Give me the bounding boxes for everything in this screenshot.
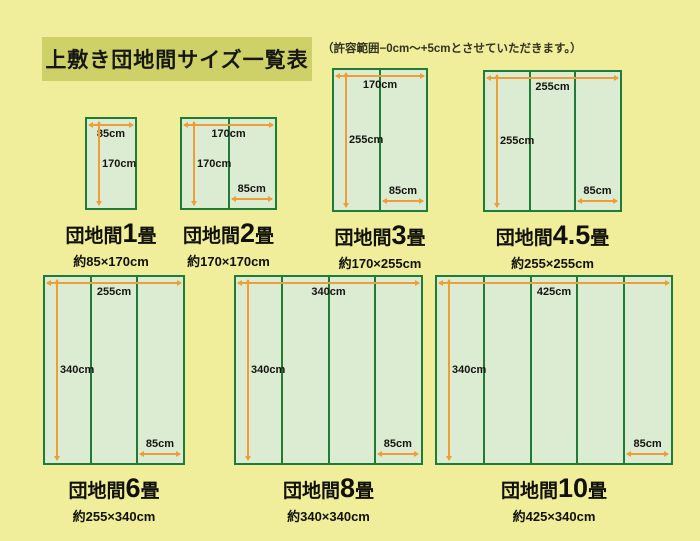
arrowhead-down bbox=[54, 456, 60, 461]
caption-prefix: 団地間 bbox=[183, 226, 240, 247]
width-label: 255cm bbox=[45, 286, 183, 298]
width-label: 170cm bbox=[182, 128, 275, 140]
height-arrow bbox=[98, 122, 100, 205]
arrowhead-left bbox=[626, 451, 631, 457]
panel-width-label: 85cm bbox=[137, 438, 183, 450]
caption-unit: 畳 bbox=[590, 228, 609, 249]
diagram-caption-danchima-2jo: 団地間2畳約170×170cm bbox=[183, 219, 274, 270]
width-label: 170cm bbox=[334, 79, 426, 91]
size-chart-canvas: 上敷き団地間サイズ一覧表 （許容範囲−0cm～+5cmとさせていただきます。） … bbox=[0, 0, 700, 541]
caption-dimensions: 約340×340cm bbox=[283, 506, 374, 525]
panel-divider bbox=[328, 277, 330, 463]
caption-prefix: 団地間 bbox=[68, 481, 125, 502]
rug-rect-danchima-6jo: 255cm340cm85cm bbox=[43, 275, 185, 465]
arrowhead-down bbox=[191, 201, 197, 206]
height-arrow bbox=[345, 73, 347, 207]
caption-unit: 畳 bbox=[588, 481, 607, 502]
height-arrow bbox=[247, 280, 249, 460]
caption-name: 団地間3畳 bbox=[334, 221, 425, 251]
arrowhead-right bbox=[664, 451, 669, 457]
width-arrow bbox=[238, 282, 419, 284]
diagram-caption-danchima-10jo: 団地間10畳約425×340cm bbox=[501, 474, 607, 525]
panel-divider bbox=[374, 277, 376, 463]
height-arrow bbox=[193, 122, 195, 205]
panel-width-arrow bbox=[627, 453, 668, 455]
panel-width-label: 85cm bbox=[380, 185, 426, 197]
panel-width-arrow bbox=[140, 453, 180, 455]
panel-width-label: 85cm bbox=[624, 438, 671, 450]
arrowhead-up bbox=[96, 121, 102, 126]
caption-size-number: 1 bbox=[122, 218, 137, 248]
height-label: 170cm bbox=[102, 158, 136, 170]
rug-rect-danchima-2jo: 170cm170cm85cm bbox=[180, 117, 277, 210]
caption-name: 団地間8畳 bbox=[283, 474, 374, 504]
panel-divider bbox=[576, 277, 578, 463]
rug-rect-danchima-10jo: 425cm340cm85cm bbox=[435, 275, 673, 465]
height-arrow bbox=[448, 280, 450, 460]
height-arrow bbox=[496, 75, 498, 207]
arrowhead-up bbox=[494, 74, 500, 79]
arrowhead-up bbox=[245, 279, 251, 284]
arrowhead-down bbox=[343, 203, 349, 208]
arrowhead-left bbox=[577, 198, 582, 204]
arrowhead-down bbox=[446, 456, 452, 461]
caption-size-number: 3 bbox=[391, 220, 406, 250]
arrowhead-down bbox=[96, 201, 102, 206]
diagram-caption-danchima-6jo: 団地間6畳約255×340cm bbox=[68, 474, 159, 525]
diagram-caption-danchima-3jo: 団地間3畳約170×255cm bbox=[334, 221, 425, 272]
diagram-caption-danchima-4-5jo: 団地間4.5畳約255×255cm bbox=[496, 221, 610, 272]
arrowhead-left bbox=[382, 198, 387, 204]
caption-dimensions: 約255×340cm bbox=[68, 506, 159, 525]
caption-unit: 畳 bbox=[255, 226, 274, 247]
caption-size-number: 6 bbox=[125, 473, 140, 503]
panel-width-label: 85cm bbox=[375, 438, 421, 450]
caption-name: 団地間2畳 bbox=[183, 219, 274, 249]
width-arrow bbox=[439, 282, 669, 284]
panel-width-arrow bbox=[383, 200, 423, 202]
diagram-caption-danchima-1jo: 団地間1畳約85×170cm bbox=[65, 219, 156, 270]
arrowhead-right bbox=[414, 451, 419, 457]
diagram-caption-danchima-8jo: 団地間8畳約340×340cm bbox=[283, 474, 374, 525]
arrowhead-up bbox=[446, 279, 452, 284]
arrowhead-down bbox=[494, 203, 500, 208]
caption-prefix: 団地間 bbox=[283, 481, 340, 502]
caption-unit: 畳 bbox=[355, 481, 374, 502]
height-label: 340cm bbox=[452, 364, 486, 376]
caption-prefix: 団地間 bbox=[334, 228, 391, 249]
height-label: 170cm bbox=[197, 158, 231, 170]
arrowhead-up bbox=[343, 72, 349, 77]
rug-rect-danchima-4-5jo: 255cm255cm85cm bbox=[483, 70, 622, 212]
panel-divider bbox=[623, 277, 625, 463]
arrowhead-right bbox=[176, 451, 181, 457]
caption-prefix: 団地間 bbox=[65, 226, 122, 247]
caption-name: 団地間6畳 bbox=[68, 474, 159, 504]
arrowhead-up bbox=[191, 121, 197, 126]
caption-size-number: 10 bbox=[558, 473, 588, 503]
panel-width-label: 85cm bbox=[229, 183, 276, 195]
rug-rect-danchima-3jo: 170cm255cm85cm bbox=[332, 68, 428, 212]
caption-unit: 畳 bbox=[138, 226, 157, 247]
caption-size-number: 8 bbox=[340, 473, 355, 503]
width-label: 425cm bbox=[437, 286, 671, 298]
caption-dimensions: 約170×255cm bbox=[334, 253, 425, 272]
caption-prefix: 団地間 bbox=[496, 228, 553, 249]
width-arrow bbox=[184, 124, 273, 126]
caption-unit: 畳 bbox=[141, 481, 160, 502]
arrowhead-up bbox=[54, 279, 60, 284]
tolerance-note: （許容範囲−0cm～+5cmとさせていただきます。） bbox=[322, 40, 582, 56]
arrowhead-left bbox=[231, 196, 236, 202]
panel-divider bbox=[530, 277, 532, 463]
height-label: 255cm bbox=[500, 135, 534, 147]
panel-width-arrow bbox=[378, 453, 418, 455]
rug-rect-danchima-1jo: 85cm170cm bbox=[85, 117, 137, 210]
caption-dimensions: 約85×170cm bbox=[65, 251, 156, 270]
arrowhead-left bbox=[139, 451, 144, 457]
panel-width-arrow bbox=[578, 200, 617, 202]
page-title: 上敷き団地間サイズ一覧表 bbox=[45, 44, 308, 74]
caption-name: 団地間4.5畳 bbox=[496, 221, 610, 251]
width-arrow bbox=[47, 282, 181, 284]
height-arrow bbox=[56, 280, 58, 460]
caption-name: 団地間1畳 bbox=[65, 219, 156, 249]
width-arrow bbox=[336, 75, 424, 77]
caption-prefix: 団地間 bbox=[501, 481, 558, 502]
arrowhead-right bbox=[419, 198, 424, 204]
caption-dimensions: 約255×255cm bbox=[496, 253, 610, 272]
arrowhead-left bbox=[377, 451, 382, 457]
arrowhead-down bbox=[245, 456, 251, 461]
caption-dimensions: 約425×340cm bbox=[501, 506, 607, 525]
height-label: 340cm bbox=[60, 364, 94, 376]
width-arrow bbox=[487, 77, 618, 79]
width-label: 340cm bbox=[236, 286, 421, 298]
caption-size-number: 2 bbox=[240, 218, 255, 248]
arrowhead-right bbox=[268, 196, 273, 202]
width-label: 255cm bbox=[485, 81, 620, 93]
height-label: 340cm bbox=[251, 364, 285, 376]
rug-rect-danchima-8jo: 340cm340cm85cm bbox=[234, 275, 423, 465]
width-label: 85cm bbox=[87, 128, 135, 140]
panel-width-label: 85cm bbox=[575, 185, 620, 197]
panel-width-arrow bbox=[232, 198, 273, 200]
caption-dimensions: 約170×170cm bbox=[183, 251, 274, 270]
title-box: 上敷き団地間サイズ一覧表 bbox=[42, 37, 312, 81]
height-label: 255cm bbox=[349, 134, 383, 146]
arrowhead-right bbox=[613, 198, 618, 204]
caption-size-number: 4.5 bbox=[553, 220, 591, 250]
caption-unit: 畳 bbox=[407, 228, 426, 249]
panel-divider bbox=[136, 277, 138, 463]
caption-name: 団地間10畳 bbox=[501, 474, 607, 504]
